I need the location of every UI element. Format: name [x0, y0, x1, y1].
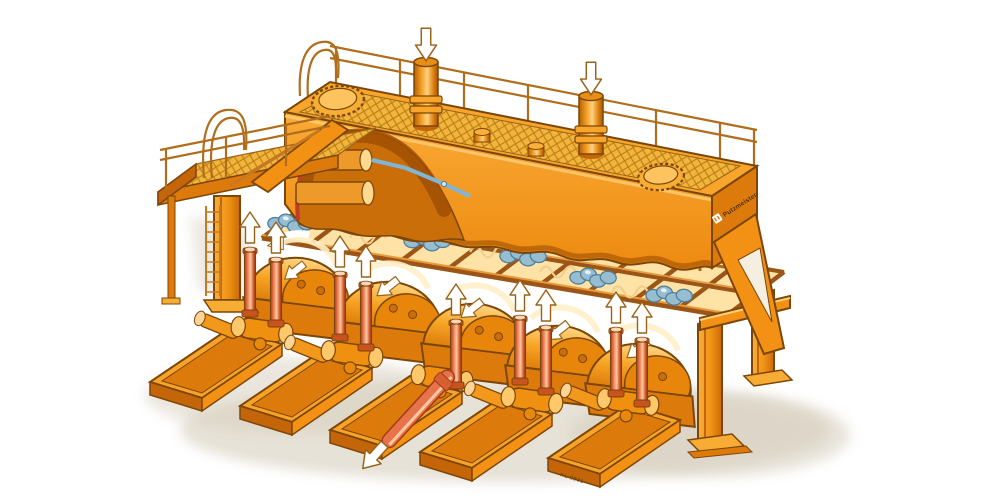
dampener-cylinder: [332, 271, 348, 341]
dampener-cylinder: [512, 315, 528, 385]
inlet-down-arrow-icon: [416, 28, 437, 61]
inlet-pipe: [410, 28, 442, 131]
deck-stub: [474, 129, 490, 143]
machine-illustration: Putzmeister: [0, 0, 1000, 500]
dampener-cylinder: [358, 281, 374, 351]
dampener-cylinder: [538, 325, 554, 395]
illustration-canvas: Putzmeister: [0, 0, 1000, 500]
piston-cylinder: [296, 181, 374, 205]
dampener-cylinder: [608, 327, 624, 397]
dampener-cylinder: [242, 247, 258, 317]
suction-tank: Putzmeister: [285, 28, 759, 269]
flow-up-arrow-icon: [536, 290, 556, 321]
inlet-pipe: [575, 62, 607, 159]
dampener-cylinder: [634, 337, 650, 407]
dampener-cylinder: [268, 257, 284, 327]
inlet-down-arrow-icon: [581, 62, 602, 95]
deck-stub: [528, 143, 544, 157]
